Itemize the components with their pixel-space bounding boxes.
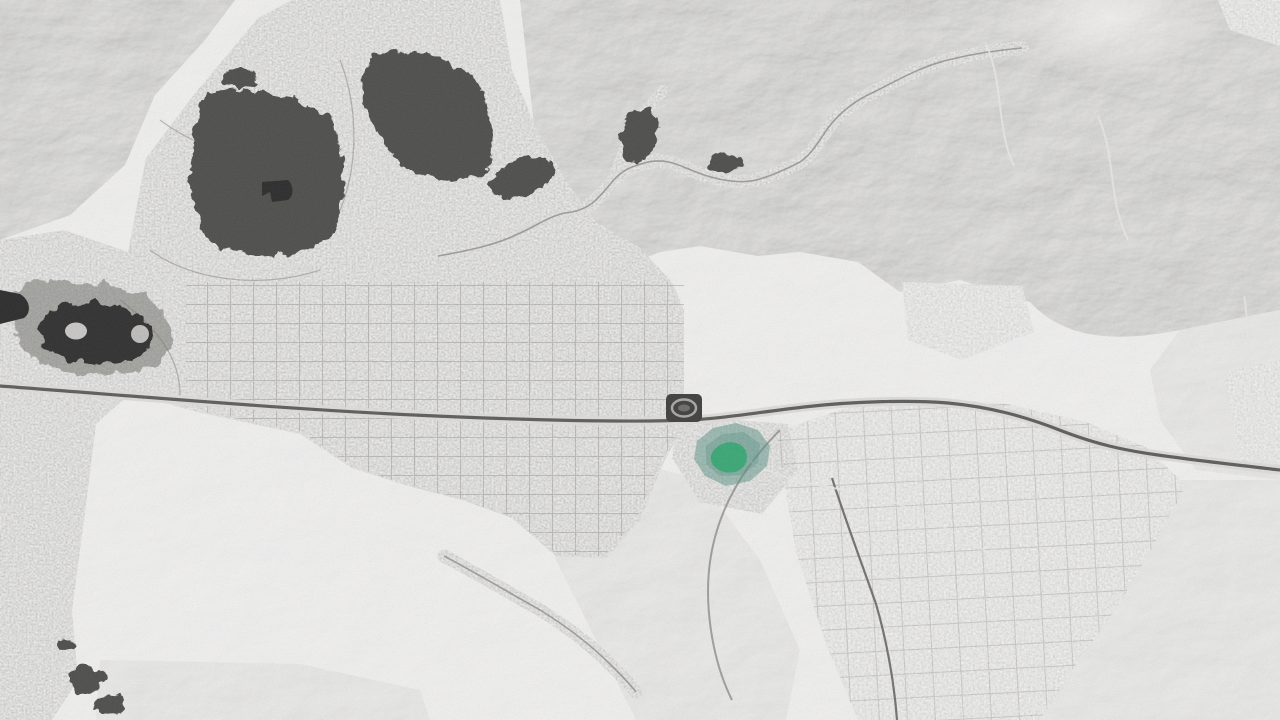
lake-island: [65, 323, 87, 340]
satellite-imagery: [0, 0, 1280, 720]
golf-course-pentagon: [190, 90, 344, 256]
grove-southwest-1: [57, 637, 75, 651]
lake-peninsula: [131, 325, 149, 343]
track-infield: [678, 405, 690, 412]
stadium-running-track: [666, 394, 702, 422]
grove-southwest-3: [95, 695, 125, 715]
golf-course-pentagon-arm: [222, 68, 258, 88]
map-viewport[interactable]: [0, 0, 1280, 720]
grove-southwest-2: [67, 665, 105, 691]
canyon-grove-east: [708, 153, 740, 171]
